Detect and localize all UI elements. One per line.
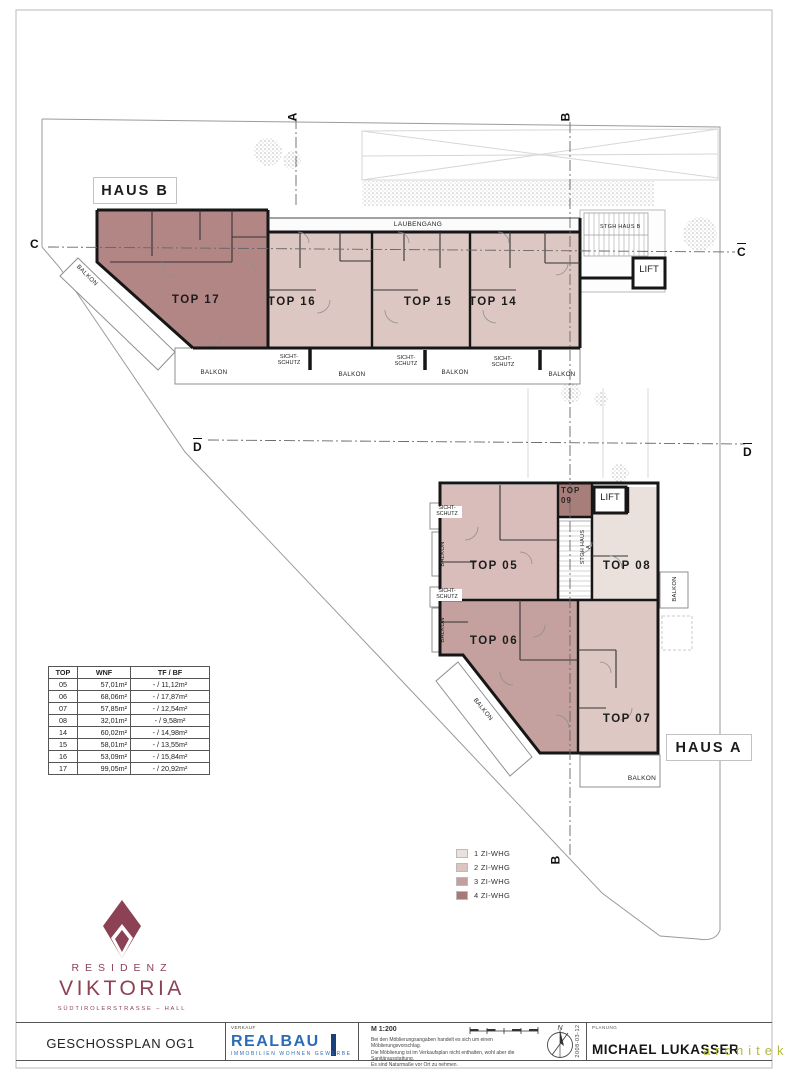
balkon-label-a-left1: BALKON	[440, 535, 446, 573]
table-row: 0832,01m²- / 9,58m²	[49, 715, 210, 727]
section-marker-a-top: A	[285, 113, 299, 122]
section-marker-d-right: D	[743, 443, 752, 459]
titleblock-divider-1	[225, 1022, 226, 1060]
legend-label-1zi: 1 ZI-WHG	[474, 849, 510, 858]
unit-label-top08: TOP 08	[599, 560, 655, 572]
table-row: 1460,02m²- / 14,98m²	[49, 727, 210, 739]
architekt-word: architekt	[703, 1043, 785, 1058]
table-row: 1799,05m²- / 20,92m²	[49, 763, 210, 775]
cell: 58,01m²	[78, 739, 131, 751]
cell: - / 15,84m²	[131, 751, 210, 763]
unit-label-top09: TOP 09	[561, 486, 587, 507]
legend-item-2zi: 2 ZI-WHG	[456, 863, 510, 872]
legend-swatch-2zi	[456, 863, 468, 872]
balkon-label-a-right: BALKON	[672, 570, 678, 608]
col-header-wnf: WNF	[78, 667, 131, 679]
room-type-legend: 1 ZI-WHG 2 ZI-WHG 3 ZI-WHG 4 ZI-WHG	[456, 849, 510, 905]
unit-label-top15: TOP 15	[400, 296, 456, 308]
hedge-strip	[362, 181, 654, 206]
cell: - / 20,92m²	[131, 763, 210, 775]
table-row: 0668,06m²- / 17,87m²	[49, 691, 210, 703]
realbau-logo-text: REALBAU	[231, 1033, 320, 1051]
cell: - / 12,54m²	[131, 703, 210, 715]
stgh-haus-a-label: STGH HAUS A	[580, 527, 592, 567]
cell: 16	[49, 751, 78, 763]
cell: 05	[49, 679, 78, 691]
plan-title: GESCHOSSPLAN OG1	[16, 1036, 225, 1051]
unit-top07-area	[578, 600, 658, 753]
section-marker-b-top: B	[558, 113, 572, 122]
legend-swatch-1zi	[456, 849, 468, 858]
legend-item-1zi: 1 ZI-WHG	[456, 849, 510, 858]
legend-item-3zi: 3 ZI-WHG	[456, 877, 510, 886]
stairs-haus-b	[584, 213, 648, 256]
unit-label-top17: TOP 17	[168, 294, 224, 306]
titleblock-top-rule	[16, 1022, 772, 1023]
cell: - / 17,87m²	[131, 691, 210, 703]
terrace-dashed	[662, 616, 692, 650]
col-header-tfbf: TF / BF	[131, 667, 210, 679]
cell: 68,06m²	[78, 691, 131, 703]
scale-label: M 1:200	[371, 1026, 397, 1033]
brand-address: SÜDTIROLERSTRASSE – HALL	[37, 1006, 207, 1012]
area-table-header-row: TOP WNF TF / BF	[49, 667, 210, 679]
table-row: 1558,01m²- / 13,55m²	[49, 739, 210, 751]
cell: 57,01m²	[78, 679, 131, 691]
laubengang-label: LAUBENGANG	[383, 221, 453, 228]
unit-label-top05: TOP 05	[466, 560, 522, 572]
cell: - / 13,55m²	[131, 739, 210, 751]
sichtschutz-label-b1: SICHT- SCHUTZ	[273, 354, 305, 366]
cell: 06	[49, 691, 78, 703]
haus-b-label-text: HAUS B	[101, 183, 169, 199]
balkon-label-a-left2: BALKON	[440, 611, 446, 649]
planung-label: PLANUNG	[592, 1025, 617, 1030]
cell: - / 14,98m²	[131, 727, 210, 739]
haus-a-label-text: HAUS A	[675, 740, 742, 756]
lift-haus-b-label: LIFT	[633, 264, 665, 275]
cell: 08	[49, 715, 78, 727]
legend-label-2zi: 2 ZI-WHG	[474, 863, 510, 872]
section-marker-d-left: D	[193, 438, 202, 454]
table-row: 0557,01m²- / 11,12m²	[49, 679, 210, 691]
balkon-label-b3: BALKON	[435, 369, 475, 376]
disclaimer-line-1: Bei den Möblierungsangaben handelt es si…	[371, 1037, 539, 1050]
yard-dividers	[528, 388, 648, 478]
cell: 99,05m²	[78, 763, 131, 775]
titleblock-divider-2	[358, 1022, 359, 1060]
cell: 14	[49, 727, 78, 739]
plan-date: 2008-03-12	[575, 1019, 581, 1063]
cell: 07	[49, 703, 78, 715]
brand-viktoria: VIKTORIA	[27, 977, 217, 1001]
balkon-label-b1: BALKON	[194, 369, 234, 376]
legend-swatch-4zi	[456, 891, 468, 900]
table-row: 0757,85m²- / 12,54m²	[49, 703, 210, 715]
disclaimer-line-3: Es sind Naturmaße vor Ort zu nehmen.	[371, 1062, 539, 1068]
cell: - / 9,58m²	[131, 715, 210, 727]
disclaimer-line-2: Die Möblierung ist im Verkaufsplan nicht…	[371, 1050, 539, 1063]
cell: 17	[49, 763, 78, 775]
legend-swatch-3zi	[456, 877, 468, 886]
haus-a-label: HAUS A	[666, 734, 752, 761]
unit-label-top06: TOP 06	[466, 635, 522, 647]
section-marker-c-left: C	[30, 237, 39, 251]
titleblock-divider-3	[586, 1022, 587, 1060]
section-marker-c-right: C	[737, 243, 746, 259]
legend-label-3zi: 3 ZI-WHG	[474, 877, 510, 886]
unit-label-top16: TOP 16	[264, 296, 320, 308]
cell: 57,85m²	[78, 703, 131, 715]
section-marker-b-bottom: B	[548, 856, 562, 865]
area-table: TOP WNF TF / BF 0557,01m²- / 11,12m² 066…	[48, 666, 210, 775]
disclaimer-text: Bei den Möblierungsangaben handelt es si…	[371, 1037, 539, 1068]
legend-item-4zi: 4 ZI-WHG	[456, 891, 510, 900]
unit-label-top14: TOP 14	[465, 296, 521, 308]
verkauf-label: VERKAUF	[231, 1025, 256, 1030]
sichtschutz-label-a1: SICHT- SCHUTZ	[432, 506, 462, 518]
north-label: N	[553, 1025, 567, 1032]
viktoria-logo-icon	[98, 898, 146, 958]
cell: 53,09m²	[78, 751, 131, 763]
realbau-sub-text: IMMOBILIEN WOHNEN GEWERBE	[231, 1051, 352, 1057]
stgh-haus-b-label: STGH HAUS B	[600, 224, 641, 230]
balkon-label-b4: BALKON	[542, 371, 582, 378]
lift-haus-a-label: LIFT	[594, 492, 626, 503]
legend-label-4zi: 4 ZI-WHG	[474, 891, 510, 900]
col-header-top: TOP	[49, 667, 78, 679]
cell: 15	[49, 739, 78, 751]
balkon-label-a-bottom: BALKON	[612, 775, 672, 782]
sichtschutz-label-a2: SICHT- SCHUTZ	[432, 589, 462, 601]
cell: - / 11,12m²	[131, 679, 210, 691]
brand-residenz: RESIDENZ	[37, 962, 207, 974]
pergola-structure	[362, 129, 718, 180]
haus-b-label: HAUS B	[93, 177, 177, 204]
plan-sheet: HAUS B HAUS A TOP 17 TOP 16 TOP 15 TOP 1…	[0, 0, 785, 1080]
scale-bar	[470, 1027, 538, 1034]
unit-label-top07: TOP 07	[599, 713, 655, 725]
north-compass-icon	[548, 1030, 573, 1058]
sichtschutz-label-b2: SICHT- SCHUTZ	[390, 355, 422, 367]
cell: 60,02m²	[78, 727, 131, 739]
cell: 32,01m²	[78, 715, 131, 727]
balkon-label-b2: BALKON	[332, 371, 372, 378]
sichtschutz-label-b3: SICHT- SCHUTZ	[487, 356, 519, 368]
unit-top05-area	[440, 485, 558, 600]
table-row: 1653,09m²- / 15,84m²	[49, 751, 210, 763]
